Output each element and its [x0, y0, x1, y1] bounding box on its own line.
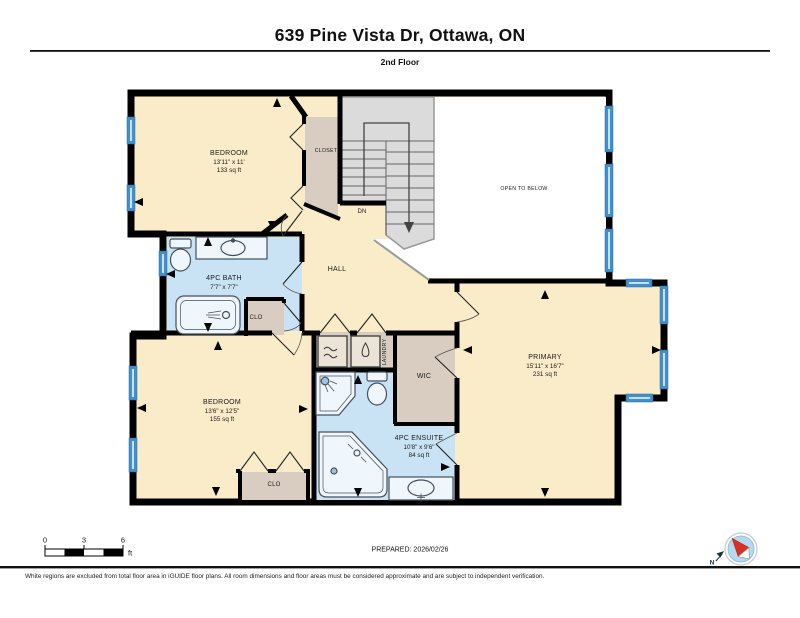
toilet-bowl-icon: [368, 383, 387, 405]
footer-divider: [0, 566, 800, 568]
disclaimer-text: White regions are excluded from total fl…: [25, 573, 544, 580]
compass-north-label: N: [710, 560, 715, 567]
toilet-bowl-icon: [171, 249, 191, 271]
north-arrowhead: [717, 551, 725, 558]
floor-subtitle: 2nd Floor: [0, 57, 800, 67]
scale-unit-label: ft: [128, 549, 132, 558]
clo-bedroom-label: CLO: [268, 482, 281, 488]
clo-bath-label: CLO: [250, 315, 263, 321]
scale-bar: [45, 545, 123, 556]
bedroom-top-label: BEDROOM 13'11" x 11' 133 sq ft: [210, 150, 248, 175]
header-divider: [30, 50, 770, 52]
laundry-label: LAUNDRY: [382, 339, 388, 366]
closet-floor: [305, 117, 338, 218]
floor-plan-page: 639 Pine Vista Dr, Ottawa, ON 2nd Floor: [0, 0, 800, 618]
primary-label: PRIMARY 15'11" x 16'7" 231 sq ft: [526, 354, 564, 379]
open-to-below-label: OPEN TO BELOW: [500, 186, 547, 192]
scale-label-6: 6: [121, 536, 125, 545]
compass-icon: [716, 533, 757, 565]
prepared-date: PREPARED: 2026/02/26: [372, 547, 449, 554]
faucet-icon: [231, 239, 234, 242]
dryer-icon: [318, 336, 347, 367]
stairs-dn-label: DN: [357, 209, 366, 215]
floor-plan-drawing: [0, 0, 800, 618]
toilet-tank-icon: [170, 239, 191, 248]
washer-icon: [351, 336, 380, 367]
closet-label: CLOSET: [315, 148, 338, 154]
bath-label: 4PC BATH 7'7" x 7'7": [206, 275, 242, 292]
page-title: 639 Pine Vista Dr, Ottawa, ON: [0, 25, 800, 46]
scale-label-3: 3: [82, 536, 86, 545]
shower-head-icon: [321, 377, 329, 385]
scale-label-0: 0: [43, 536, 47, 545]
hall-label: HALL: [328, 266, 347, 275]
scale-ticks: [45, 545, 123, 549]
tub-faucet-icon: [354, 450, 360, 456]
sink-icon: [221, 241, 245, 256]
ensuite-label: 4PC ENSUITE 10'8" x 9'6" 84 sq ft: [395, 435, 444, 460]
toilet-tank-icon: [367, 372, 387, 381]
wic-label: WIC: [417, 373, 431, 382]
tub-drain-icon: [331, 468, 337, 474]
bedroom-bottom-label: BEDROOM 13'6" x 12'5" 155 sq ft: [203, 399, 241, 424]
tub-faucet-icon: [223, 312, 230, 319]
